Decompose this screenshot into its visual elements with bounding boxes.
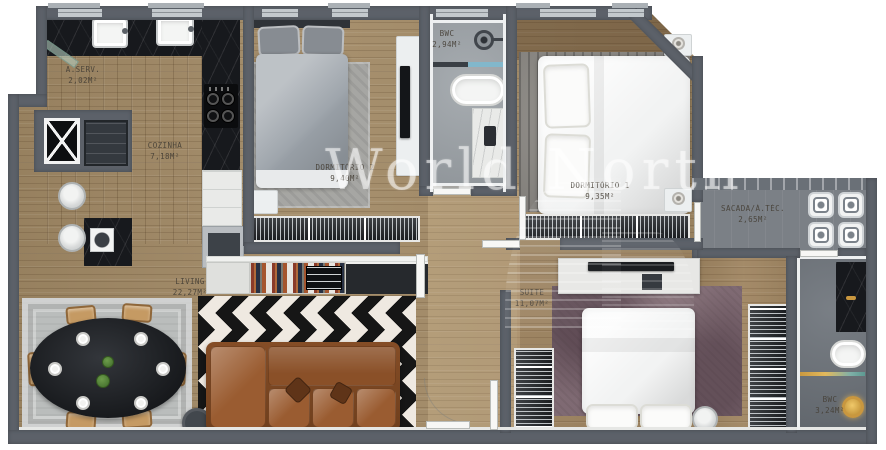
window-frame-tab xyxy=(48,3,100,8)
table-plant xyxy=(96,374,110,388)
bar-stool xyxy=(58,224,86,252)
cooktop-burner xyxy=(222,110,234,122)
toilet-suite xyxy=(830,340,866,368)
door-entry xyxy=(426,421,470,429)
wall-living-corridor xyxy=(244,242,400,254)
suite-closet-right xyxy=(748,304,788,432)
wall-left xyxy=(8,94,19,444)
label-living: LIVING 22,27m² xyxy=(148,276,232,299)
room-name: BWC xyxy=(798,394,862,405)
table-plant xyxy=(102,356,114,368)
window xyxy=(608,9,644,17)
door-balcony xyxy=(694,202,701,242)
sofa xyxy=(206,342,400,432)
sofa-seat xyxy=(268,346,396,386)
plate xyxy=(134,332,148,346)
window-frame-tab xyxy=(612,3,648,8)
wall-wing-right xyxy=(866,178,877,444)
window xyxy=(262,9,298,17)
room-name: LIVING xyxy=(148,276,232,287)
room-area: 22,27m² xyxy=(148,287,232,298)
kitchen-faucet xyxy=(188,26,194,32)
window xyxy=(58,9,102,17)
label-aserv: A.SERV. 2,02m² xyxy=(40,64,126,87)
room-area: 2,94m² xyxy=(416,39,478,50)
plate xyxy=(48,362,62,376)
window-frame-tab xyxy=(148,3,204,8)
plate xyxy=(156,362,170,376)
sofa-cushion xyxy=(356,388,396,428)
label-bwc-suite: BWC 3,24m² xyxy=(798,394,862,417)
plate xyxy=(76,332,90,346)
ac-condenser xyxy=(808,222,834,248)
label-cozinha: COZINHA 7,18m² xyxy=(123,140,207,163)
floor-plan: A.SERV. 2,02m² COZINHA 7,18m² LIVING 22,… xyxy=(0,0,886,450)
label-sacada: SACADA/Á.TÉC. 2,65m² xyxy=(703,203,803,226)
wall-laundry-left xyxy=(36,6,47,102)
watermark-text: World North xyxy=(210,138,860,203)
shaft-cabinet xyxy=(84,120,128,166)
window xyxy=(152,9,202,17)
ac-condenser xyxy=(838,222,864,248)
duvet-fold xyxy=(582,338,695,352)
cooktop-burner xyxy=(222,93,234,105)
room-name: SACADA/Á.TÉC. xyxy=(703,203,803,214)
suite-closet-left xyxy=(514,348,554,430)
window xyxy=(332,9,368,17)
island-sink xyxy=(90,228,114,252)
bathtub-social xyxy=(450,74,506,106)
exterior-notch xyxy=(0,0,36,102)
living-console xyxy=(206,256,428,294)
pillow xyxy=(301,25,344,56)
wall-kitchen-dorm2 xyxy=(243,6,254,246)
room-area: 3,24m² xyxy=(798,405,862,416)
plate xyxy=(134,396,148,410)
window xyxy=(436,9,488,17)
bwc-wall-face xyxy=(430,20,506,23)
wall-bottom xyxy=(8,430,877,444)
window-frame-tab xyxy=(328,3,370,8)
cooktop xyxy=(204,84,238,128)
room-area: 7,18m² xyxy=(123,151,207,162)
window-frame-tab xyxy=(516,3,550,8)
cooktop-burner xyxy=(207,110,219,122)
room-area: 2,65m² xyxy=(703,214,803,225)
room-name: COZINHA xyxy=(123,140,207,151)
shaft-x-box xyxy=(44,118,80,164)
wall-balcony-bottom-a xyxy=(697,248,800,258)
tv-dorm2 xyxy=(400,66,410,138)
window xyxy=(540,9,596,17)
gold-towel-bar xyxy=(799,372,865,376)
door-bwc-suite xyxy=(800,250,838,257)
gold-faucet xyxy=(846,296,856,300)
sofa-chaise xyxy=(210,346,266,428)
cooktop-burner xyxy=(207,93,219,105)
bar-stool xyxy=(58,182,86,210)
cooktop-knobs xyxy=(209,87,233,91)
wall-suite-bwc xyxy=(786,256,797,433)
shower-divider-frame xyxy=(432,62,468,67)
label-bwc-social: BWC 2,94m² xyxy=(416,28,478,51)
wardrobe-dorm2 xyxy=(250,216,420,242)
door-hall xyxy=(490,380,498,430)
pillow xyxy=(257,25,301,57)
plate xyxy=(76,396,90,410)
room-name: A.SERV. xyxy=(40,64,126,75)
av-receiver xyxy=(306,266,342,290)
pillow xyxy=(543,63,591,129)
room-area: 2,02m² xyxy=(40,75,126,86)
laundry-faucet xyxy=(122,28,128,34)
door-dorm2 xyxy=(416,254,425,298)
room-name: BWC xyxy=(416,28,478,39)
shower-glass xyxy=(468,62,506,67)
